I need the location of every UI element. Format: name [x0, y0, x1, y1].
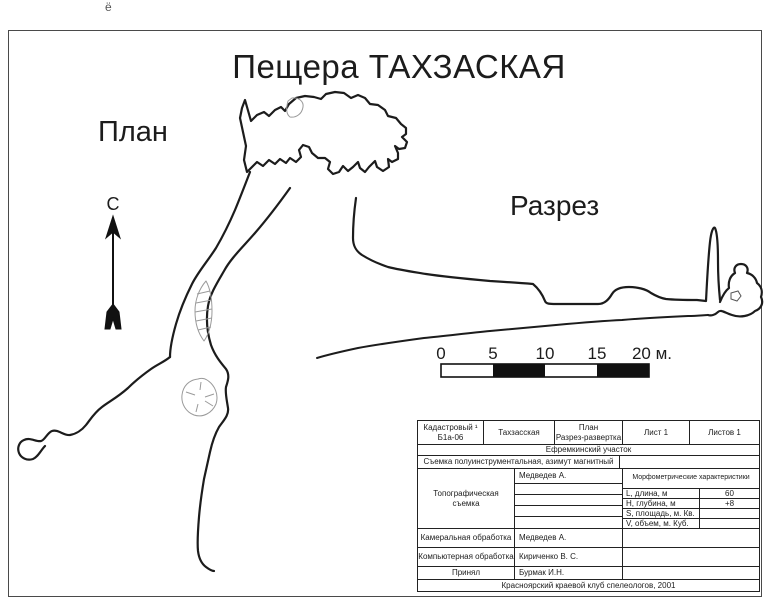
cave-name-cell: Тахзасская: [483, 421, 554, 444]
accepted-by-label-cell: Принял: [418, 567, 514, 579]
empty-cell: [622, 548, 759, 566]
morpho-label-area: S, площадь, м. Кв.: [623, 509, 699, 518]
plan-pit-circle-ticks: [186, 382, 214, 412]
table-row: Топографическая съемка Медведев А. Морфо…: [418, 468, 759, 528]
topo-label-line1: Топографическая: [433, 489, 498, 498]
survey-method: Съемка полуинструментальная, азимут магн…: [423, 457, 613, 466]
north-arrow-fletching: [105, 304, 121, 329]
accepted-by-person: Бурмак И.Н.: [519, 568, 564, 577]
table-row: Кадастровый ¹ Б1а-06 Тахзасская План Раз…: [418, 421, 759, 444]
plan-boulder-symbol: [287, 98, 303, 117]
processing-label-cell: Компьютерная обработка: [418, 548, 514, 566]
section-roof-line: [353, 198, 720, 304]
topo-label-line2: съемка: [452, 499, 479, 508]
club-footer: Красноярский краевой клуб спелеологов, 2…: [502, 581, 676, 590]
morphometry-cell: Морфометрические характеристики L, длина…: [622, 469, 759, 528]
empty-cell: [622, 567, 759, 579]
morphometry-row: Н, глубина, м+8: [623, 498, 759, 508]
processing-person: Кириченко В. С.: [519, 552, 578, 561]
scale-tick-0: 0: [436, 344, 445, 364]
club-footer-cell: Красноярский краевой клуб спелеологов, 2…: [418, 580, 759, 591]
area-cell: Ефремкинский участок: [418, 445, 759, 455]
section-end-chamber: [708, 264, 762, 316]
section-chamber-rock: [731, 291, 741, 301]
morpho-value-area: [699, 509, 759, 518]
surveyor-row: [515, 494, 622, 505]
sheet-number: Лист 1: [644, 428, 668, 437]
scale-tick-20: 20 м.: [632, 344, 672, 364]
survey-method-cell: Съемка полуинструментальная, азимут магн…: [418, 456, 619, 468]
morpho-value-depth: +8: [699, 499, 759, 508]
accepted-by-label: Принял: [452, 568, 480, 577]
cadastral-code: Б1а-06: [438, 433, 464, 442]
topo-survey-label-cell: Топографическая съемка: [418, 469, 514, 528]
scale-bar: [441, 364, 649, 377]
morphometry-row: S, площадь, м. Кв.: [623, 508, 759, 518]
scale-tick-5: 5: [488, 344, 497, 364]
surveyor-row: [515, 505, 622, 516]
plan-passage-right-wall: [198, 188, 290, 571]
surveyor-name: Медведев А.: [519, 471, 566, 480]
processing-label: Камеральная обработка: [421, 533, 512, 542]
table-row: Красноярский краевой клуб спелеологов, 2…: [418, 579, 759, 591]
surveyor-row: [515, 483, 622, 494]
processing-person-cell: Медведев А.: [514, 529, 622, 547]
empty-cell: [622, 529, 759, 547]
table-row: Компьютерная обработка Кириченко В. С.: [418, 547, 759, 566]
drawing-type-line1: План: [579, 423, 598, 432]
drawing-type-line2: Разрез-развертка: [556, 433, 621, 442]
area-name: Ефремкинский участок: [546, 445, 632, 454]
empty-cell: [619, 456, 759, 468]
north-arrow: [105, 216, 121, 329]
table-row: Принял Бурмак И.Н.: [418, 566, 759, 579]
cave-name: Тахзасская: [498, 428, 539, 437]
drawing-type-cell: План Разрез-развертка: [554, 421, 622, 444]
survey-info-table: Кадастровый ¹ Б1а-06 Тахзасская План Раз…: [417, 420, 760, 592]
plan-pit-circle-symbol: [182, 378, 217, 416]
scale-bar-segment-dark-2: [597, 364, 649, 377]
processing-person-cell: Кириченко В. С.: [514, 548, 622, 566]
table-row: Съемка полуинструментальная, азимут магн…: [418, 455, 759, 468]
topo-surveyors-cell: Медведев А.: [514, 469, 622, 528]
sheets-total-cell: Листов 1: [689, 421, 759, 444]
morphometry-row: L, длина, м60: [623, 488, 759, 498]
morpho-label-depth: Н, глубина, м: [623, 499, 699, 508]
morphometry-title: Морфометрические характеристики: [632, 474, 749, 482]
table-row: Ефремкинский участок: [418, 444, 759, 455]
table-row: Камеральная обработка Медведев А.: [418, 528, 759, 547]
sheets-total: Листов 1: [708, 428, 741, 437]
scale-tick-10: 10: [536, 344, 555, 364]
processing-label-cell: Камеральная обработка: [418, 529, 514, 547]
sheet-cell: Лист 1: [622, 421, 689, 444]
surveyor-row: [515, 516, 622, 528]
morpho-value-length: 60: [699, 489, 759, 498]
morpho-label-length: L, длина, м: [623, 489, 699, 498]
morpho-label-volume: V, объем, м. Куб.: [623, 519, 699, 528]
processing-person: Медведев А.: [519, 533, 566, 542]
plan-west-tail: [18, 357, 170, 460]
scale-bar-segment-dark-1: [493, 364, 545, 377]
morphometry-row: V, объем, м. Куб.: [623, 518, 759, 528]
morphometry-header: Морфометрические характеристики: [623, 469, 759, 488]
processing-label: Компьютерная обработка: [418, 552, 513, 561]
morpho-value-volume: [699, 519, 759, 528]
surveyor-row: Медведев А.: [515, 469, 622, 483]
scale-tick-15: 15: [588, 344, 607, 364]
cadastral-number-cell: Кадастровый ¹ Б1а-06: [418, 421, 483, 444]
cadastral-label: Кадастровый ¹: [423, 423, 477, 432]
cave-map-page: { "annotation": { "top_note": "ё" }, "he…: [0, 0, 772, 599]
accepted-by-person-cell: Бурмак И.Н.: [514, 567, 622, 579]
plan-entrance-chamber-outline: [240, 92, 407, 174]
